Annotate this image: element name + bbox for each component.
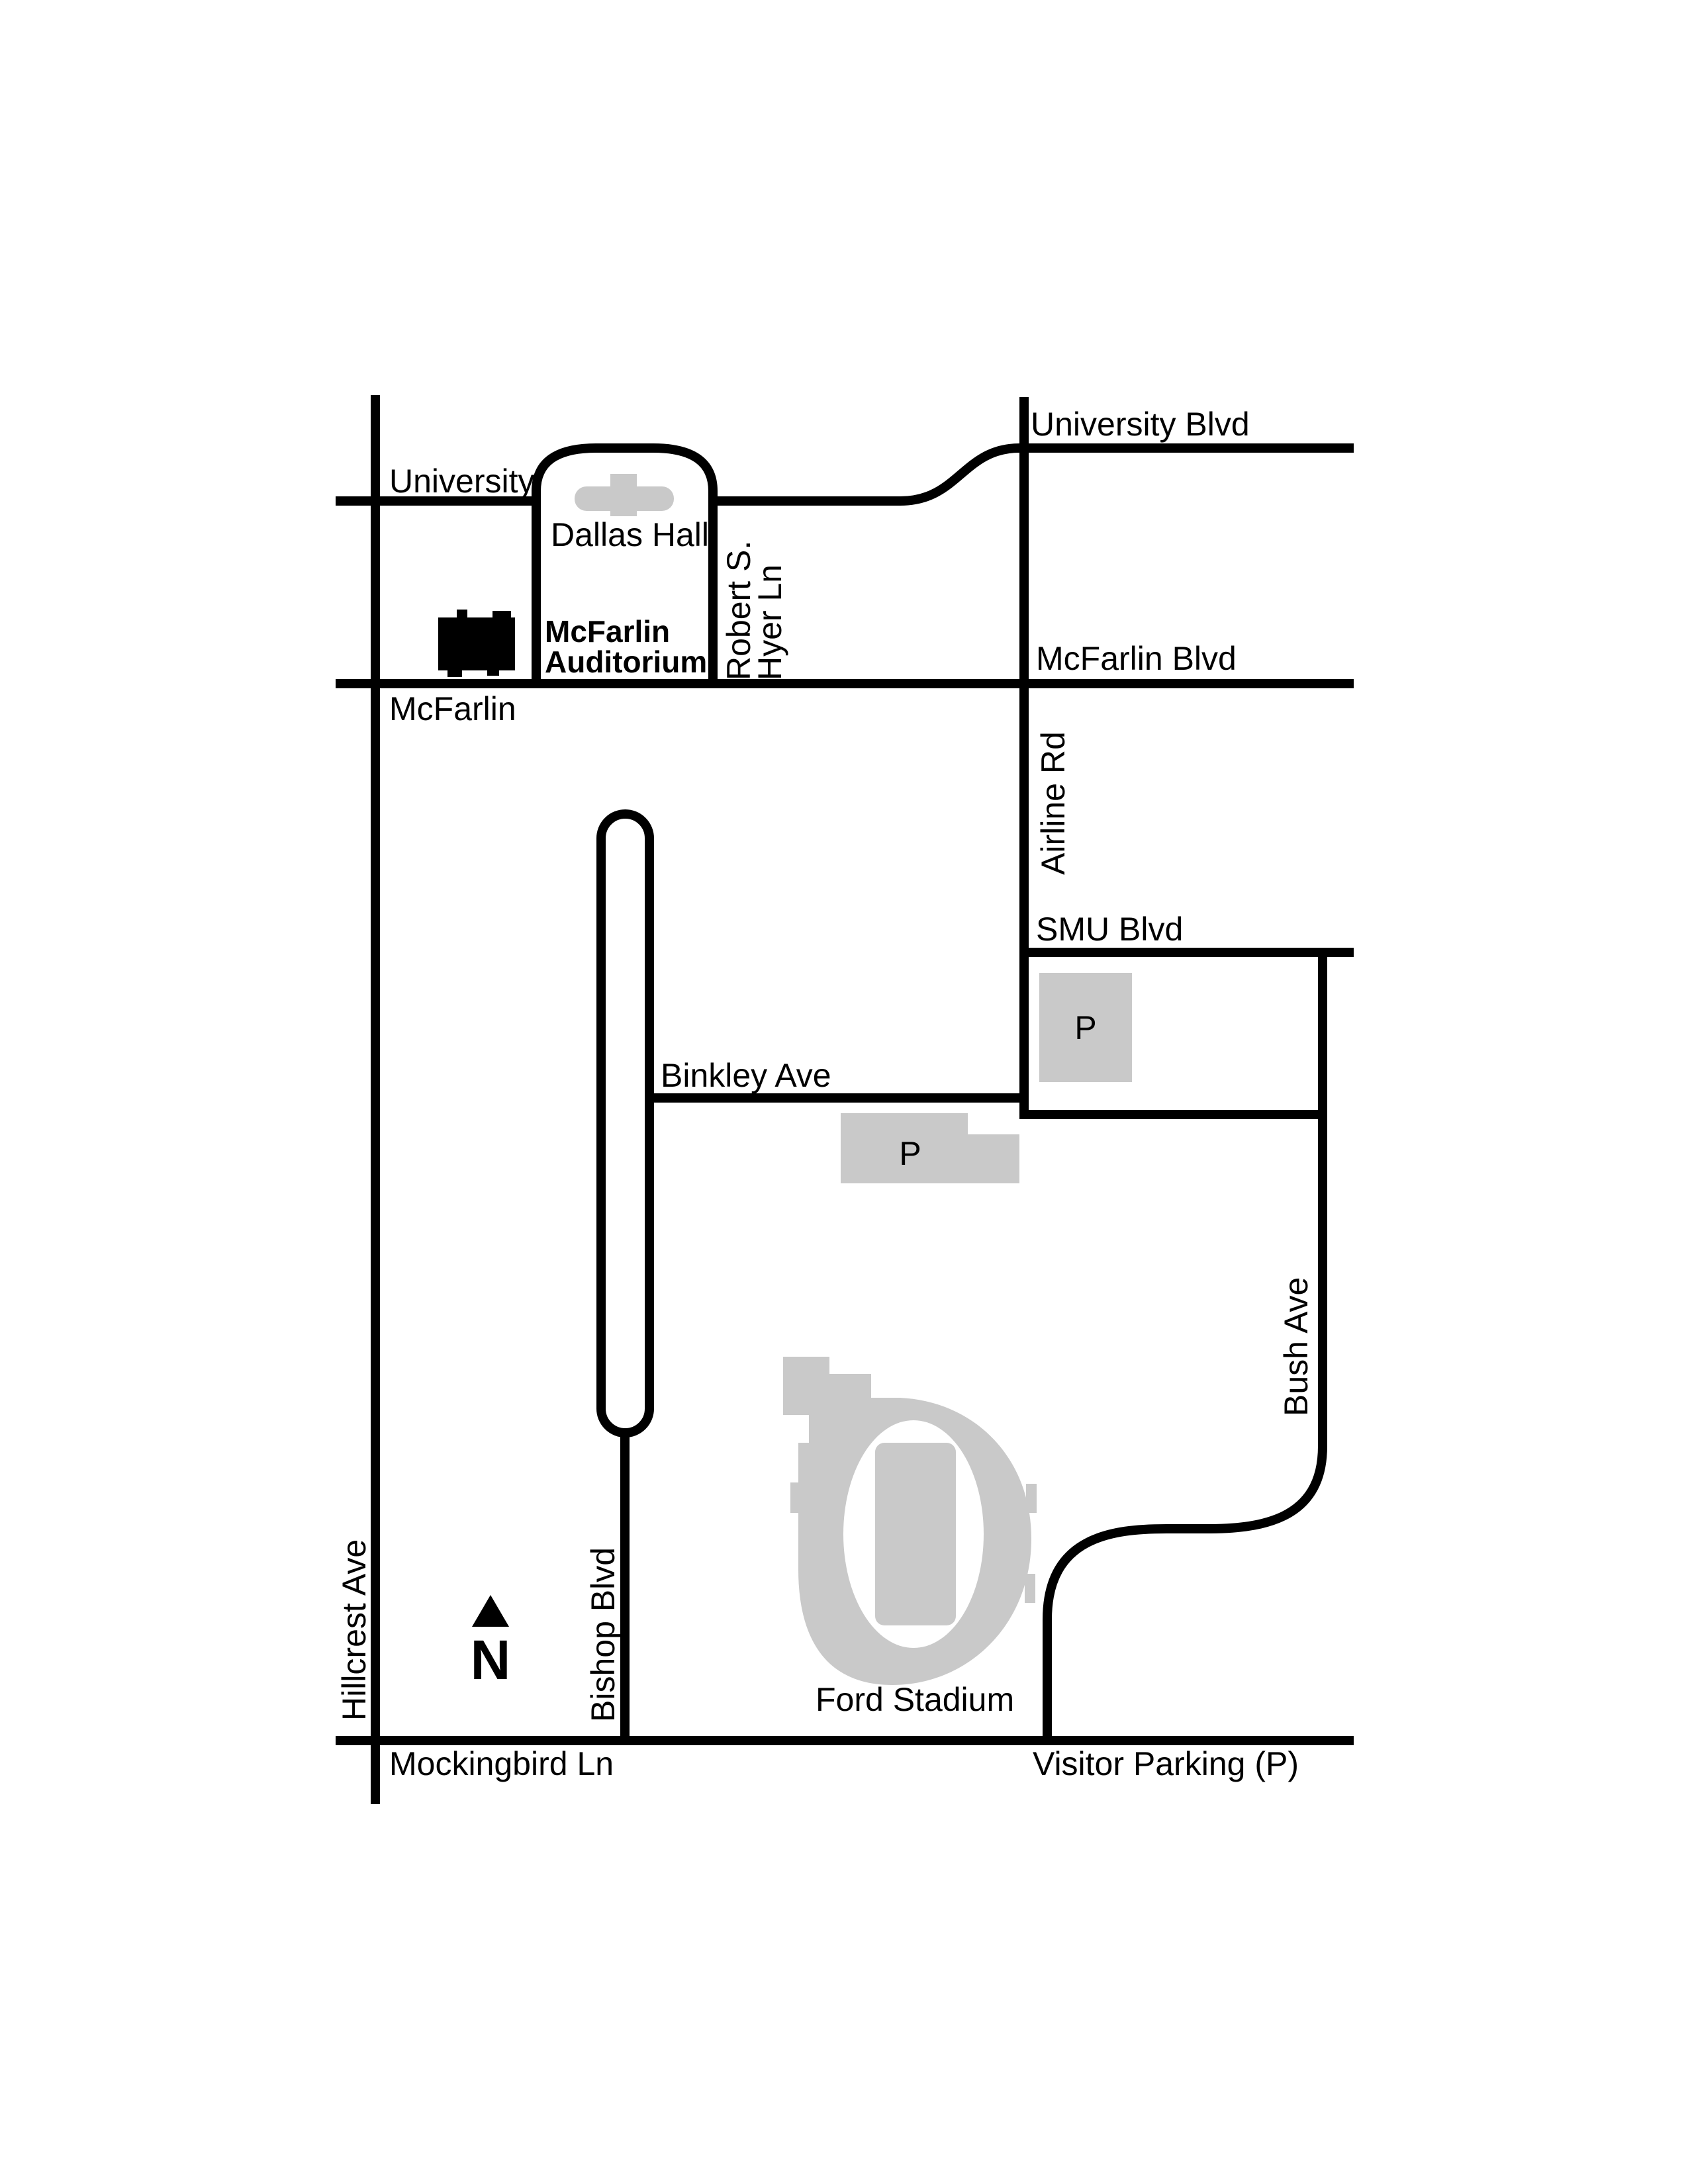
map-background [0,0,1688,2184]
label-dallas-hall: Dallas Hall [551,516,709,553]
label-binkley-ave: Binkley Ave [661,1057,831,1094]
stadium-field [875,1443,956,1625]
label-visitor-parking: Visitor Parking (P) [1033,1745,1299,1782]
label-mockingbird-ln: Mockingbird Ln [389,1745,614,1782]
label-bush-ave: Bush Ave [1278,1277,1315,1416]
label-airline-rd: Airline Rd [1035,731,1072,875]
svg-text:McFarlin: McFarlin [545,614,670,649]
campus-map: N University Blvd University Dallas Hall… [0,0,1688,2184]
label-mcfarlin-blvd: McFarlin Blvd [1036,640,1237,677]
label-ford-stadium: Ford Stadium [816,1681,1014,1718]
svg-text:Auditorium: Auditorium [545,645,707,679]
label-university-blvd: University Blvd [1031,406,1250,443]
label-bishop-blvd: Bishop Blvd [585,1547,622,1722]
label-smu-blvd: SMU Blvd [1036,911,1183,948]
label-parking-lower: P [899,1135,921,1172]
label-hillcrest-ave: Hillcrest Ave [336,1539,373,1721]
label-mcfarlin-street: McFarlin [389,690,516,727]
mcfarlin-auditorium-building [438,610,515,677]
label-parking-upper: P [1074,1009,1096,1046]
north-arrow-label: N [471,1629,511,1691]
svg-text:Hyer Ln: Hyer Ln [751,565,788,680]
label-university: University [389,463,534,500]
